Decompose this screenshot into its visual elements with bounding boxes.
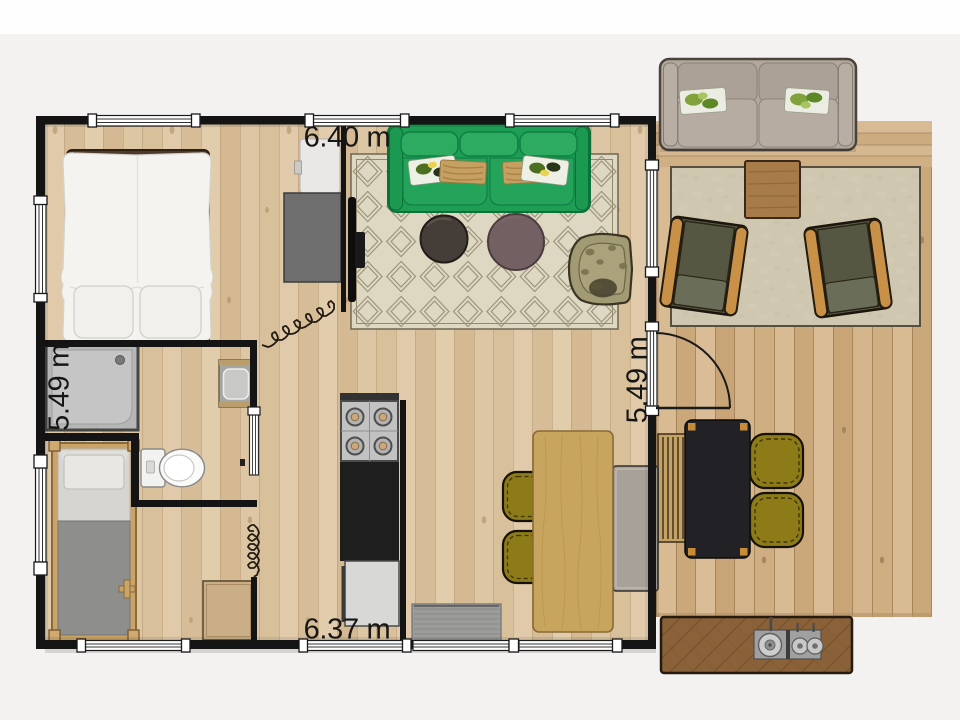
svg-text:5.49 m: 5.49 m: [44, 344, 76, 431]
svg-text:6.40 m: 6.40 m: [304, 122, 391, 154]
svg-text:6.37 m: 6.37 m: [304, 614, 391, 646]
svg-text:5.49 m: 5.49 m: [622, 337, 654, 424]
